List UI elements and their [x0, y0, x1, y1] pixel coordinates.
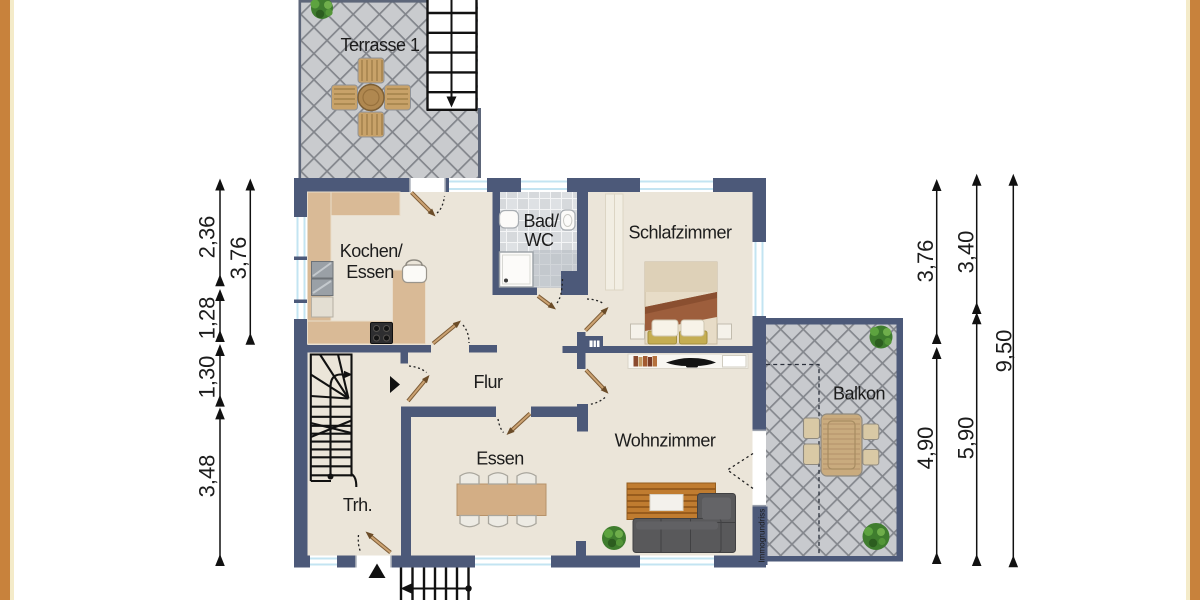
svg-text:9,50: 9,50 [992, 330, 1017, 373]
svg-text:Balkon: Balkon [833, 384, 885, 404]
svg-text:Schlafzimmer: Schlafzimmer [628, 223, 732, 243]
svg-text:Wohnzimmer: Wohnzimmer [615, 431, 716, 451]
svg-text:Terrasse 1: Terrasse 1 [340, 35, 420, 55]
svg-text:1,30: 1,30 [195, 356, 220, 399]
svg-text:3,76: 3,76 [913, 240, 938, 283]
svg-text:Essen: Essen [346, 262, 394, 282]
svg-text:WC: WC [525, 230, 554, 250]
svg-text:Kochen/: Kochen/ [340, 241, 403, 261]
svg-text:Immogrundriss: Immogrundriss [758, 509, 767, 563]
svg-text:1,28: 1,28 [195, 297, 220, 340]
svg-text:5,90: 5,90 [954, 417, 979, 460]
svg-text:Essen: Essen [476, 449, 524, 469]
svg-text:3,48: 3,48 [195, 455, 220, 498]
svg-text:3,76: 3,76 [226, 237, 251, 280]
svg-text:2,36: 2,36 [195, 216, 220, 259]
svg-text:3,40: 3,40 [954, 231, 979, 274]
svg-text:Flur: Flur [474, 372, 504, 392]
svg-text:4,90: 4,90 [913, 427, 938, 470]
svg-text:Bad/: Bad/ [523, 211, 559, 231]
svg-text:Trh.: Trh. [343, 495, 372, 515]
